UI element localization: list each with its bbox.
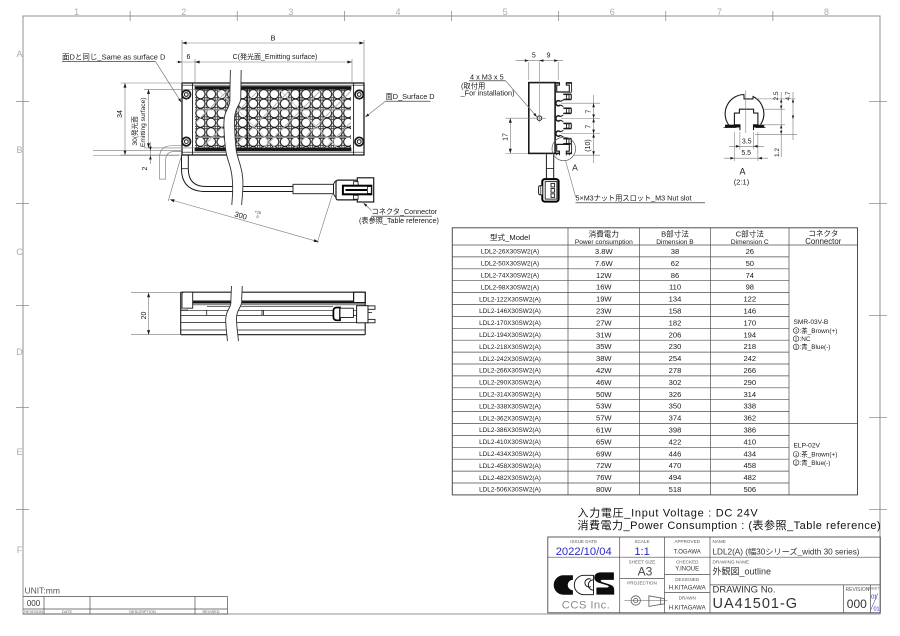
svg-text:DRAWING No.: DRAWING No. <box>713 585 776 596</box>
svg-text:230: 230 <box>669 342 682 351</box>
svg-text:H.KITAGAWA: H.KITAGAWA <box>669 606 706 612</box>
svg-text:65W: 65W <box>596 437 612 446</box>
svg-text:38: 38 <box>671 247 679 256</box>
svg-text:000: 000 <box>847 597 867 611</box>
svg-text:消費電力_Power Consumption : (表参照_: 消費電力_Power Consumption : (表参照_Table refe… <box>578 518 882 532</box>
svg-text:61W: 61W <box>596 425 612 434</box>
svg-text:Power consumption: Power consumption <box>575 239 633 246</box>
svg-text:C: C <box>16 247 23 257</box>
svg-text:80W: 80W <box>596 485 612 494</box>
svg-text:LDL2-242X30SW2(A): LDL2-242X30SW2(A) <box>479 356 541 363</box>
svg-text:218: 218 <box>743 342 756 351</box>
svg-text:T.OGAWA: T.OGAWA <box>674 550 701 556</box>
svg-text:B部寸法: B部寸法 <box>661 228 689 238</box>
svg-text:27W: 27W <box>596 318 612 327</box>
svg-text:SCALE: SCALE <box>634 539 649 544</box>
svg-text:57W: 57W <box>596 414 612 423</box>
svg-text::青_Blue(-): :青_Blue(-) <box>800 458 831 467</box>
svg-text:4 x M3 x 5: 4 x M3 x 5 <box>470 72 504 81</box>
svg-text:Emitting surface): Emitting surface) <box>140 98 147 147</box>
svg-text:コネクタ_Connector: コネクタ_Connector <box>372 207 438 216</box>
svg-text:98: 98 <box>746 283 754 292</box>
svg-text:DESIGNED: DESIGNED <box>675 577 700 582</box>
svg-text:C(発光面_Emitting surface): C(発光面_Emitting surface) <box>233 52 318 61</box>
svg-text:9: 9 <box>547 53 551 60</box>
svg-text:D: D <box>16 347 23 357</box>
svg-text:入力電圧_Input Voltage : DC 24V: 入力電圧_Input Voltage : DC 24V <box>578 507 759 520</box>
svg-text:266: 266 <box>743 366 756 375</box>
svg-text:38W: 38W <box>596 354 612 363</box>
svg-text:62: 62 <box>671 259 679 268</box>
svg-text:5×M3ナット用スロット_M3 Nut slot: 5×M3ナット用スロット_M3 Nut slot <box>576 194 692 203</box>
svg-text:(10): (10) <box>585 139 592 151</box>
svg-text:LDL2-74X30SW2(A): LDL2-74X30SW2(A) <box>481 272 539 279</box>
svg-text:110: 110 <box>669 283 681 292</box>
svg-text:ISSUE DATE: ISSUE DATE <box>570 539 597 544</box>
svg-text:482: 482 <box>743 473 756 482</box>
svg-text:1: 1 <box>74 7 79 17</box>
svg-text:B: B <box>270 34 275 43</box>
svg-text:ELP-02V: ELP-02V <box>794 442 821 449</box>
svg-text:242: 242 <box>743 354 756 363</box>
svg-text:LDL2-290X30SW2(A): LDL2-290X30SW2(A) <box>479 380 541 387</box>
svg-text:2: 2 <box>181 7 186 17</box>
svg-text:LDL2-362X30SW2(A): LDL2-362X30SW2(A) <box>479 415 541 422</box>
svg-text:410: 410 <box>743 437 756 446</box>
svg-text:Y.INOUE: Y.INOUE <box>675 567 699 573</box>
svg-text:LDL2-50X30SW2(A): LDL2-50X30SW2(A) <box>481 261 539 268</box>
svg-text:000: 000 <box>27 599 41 608</box>
svg-text:23W: 23W <box>596 306 612 315</box>
svg-text:42W: 42W <box>596 366 612 375</box>
svg-text:DRAWING NAME: DRAWING NAME <box>713 560 750 565</box>
svg-text:CHECKED: CHECKED <box>676 560 699 565</box>
svg-text:UNIT:mm: UNIT:mm <box>25 586 60 596</box>
svg-text:17: 17 <box>502 133 509 141</box>
svg-text:REVISION: REVISION <box>846 587 870 593</box>
svg-text:182: 182 <box>669 318 682 327</box>
svg-text:2: 2 <box>142 166 149 170</box>
svg-text:LDL2-458X30SW2(A): LDL2-458X30SW2(A) <box>479 463 541 470</box>
svg-text:E: E <box>16 447 22 457</box>
svg-text:434: 434 <box>743 449 756 458</box>
svg-text:122: 122 <box>743 295 756 304</box>
svg-text:494: 494 <box>669 473 682 482</box>
svg-text:LDL2-506X30SW2(A): LDL2-506X30SW2(A) <box>479 487 541 494</box>
svg-text:LDL2-386X30SW2(A): LDL2-386X30SW2(A) <box>479 427 541 434</box>
svg-text:7: 7 <box>586 109 593 113</box>
svg-text:CCS Inc.: CCS Inc. <box>562 600 610 612</box>
svg-text:LDL2-122X30SW2(A): LDL2-122X30SW2(A) <box>479 296 541 303</box>
svg-text:LDL2-194X30SW2(A): LDL2-194X30SW2(A) <box>479 332 541 339</box>
svg-text:446: 446 <box>669 449 682 458</box>
svg-text:LDL2-410X30SW2(A): LDL2-410X30SW2(A) <box>479 439 541 446</box>
svg-text:外観図_outline: 外観図_outline <box>713 566 772 577</box>
svg-text:30(発光面: 30(発光面 <box>130 116 139 146</box>
svg-text:H.KITAGAWA: H.KITAGAWA <box>669 586 706 592</box>
svg-text:3: 3 <box>288 7 293 17</box>
svg-text:(2:1): (2:1) <box>734 178 750 187</box>
svg-text:314: 314 <box>743 390 756 399</box>
svg-text:326: 326 <box>669 390 682 399</box>
svg-text:69W: 69W <box>596 449 612 458</box>
svg-text:2.5: 2.5 <box>773 91 780 100</box>
svg-text:PROJECTION: PROJECTION <box>627 581 657 586</box>
svg-text:16W: 16W <box>596 283 612 292</box>
svg-text:LDL2-98X30SW2(A): LDL2-98X30SW2(A) <box>481 284 539 291</box>
svg-text:UA41501-G: UA41501-G <box>713 596 799 612</box>
svg-text:3.8W: 3.8W <box>595 247 614 256</box>
svg-text:C部寸法: C部寸法 <box>736 228 765 238</box>
svg-text:338: 338 <box>743 402 756 411</box>
svg-text:302: 302 <box>669 378 682 387</box>
svg-text:NAME: NAME <box>713 539 726 544</box>
svg-text:7.6W: 7.6W <box>595 259 614 268</box>
svg-text:35W: 35W <box>596 342 612 351</box>
svg-text:278: 278 <box>669 366 682 375</box>
svg-text:Dimension B: Dimension B <box>656 239 694 246</box>
svg-text:12W: 12W <box>596 271 612 280</box>
svg-text:B: B <box>16 145 22 155</box>
svg-text:134: 134 <box>669 295 682 304</box>
svg-text:72W: 72W <box>596 461 612 470</box>
svg-text:7: 7 <box>717 7 722 17</box>
svg-text:(表参照_Table reference): (表参照_Table reference) <box>359 216 439 225</box>
svg-text:DESCRIPTION: DESCRIPTION <box>129 609 156 614</box>
svg-text:19W: 19W <box>596 295 612 304</box>
svg-text:Dimension C: Dimension C <box>731 239 769 246</box>
svg-text:20: 20 <box>141 312 148 320</box>
svg-text:LDL2-266X30SW2(A): LDL2-266X30SW2(A) <box>479 368 541 375</box>
svg-text:76W: 76W <box>596 473 612 482</box>
svg-text:F: F <box>17 545 23 555</box>
svg-text:53W: 53W <box>596 402 612 411</box>
svg-text:A3: A3 <box>638 564 653 578</box>
svg-text:6: 6 <box>610 7 615 17</box>
svg-text:74: 74 <box>746 271 754 280</box>
svg-text:506: 506 <box>743 485 756 494</box>
svg-text::青_Blue(-): :青_Blue(-) <box>800 342 831 351</box>
svg-text:458: 458 <box>743 461 756 470</box>
svg-text:LDL2-314X30SW2(A): LDL2-314X30SW2(A) <box>479 391 541 398</box>
svg-text:5.5: 5.5 <box>741 150 751 157</box>
svg-text:374: 374 <box>669 414 682 423</box>
svg-text:_For installation): _For installation) <box>460 89 515 98</box>
svg-text:REVISION: REVISION <box>24 609 43 614</box>
svg-text::NC: :NC <box>800 336 811 343</box>
svg-text:290: 290 <box>743 378 756 387</box>
svg-text:6: 6 <box>187 54 191 61</box>
svg-text:LDL2-482X30SW2(A): LDL2-482X30SW2(A) <box>479 475 541 482</box>
svg-text:170: 170 <box>743 318 756 327</box>
svg-text:518: 518 <box>669 485 682 494</box>
svg-text:5: 5 <box>503 7 508 17</box>
svg-text:50: 50 <box>746 259 754 268</box>
svg-text::茶_Brown(+): :茶_Brown(+) <box>800 326 838 335</box>
svg-text:1:1: 1:1 <box>634 546 650 558</box>
svg-text:01: 01 <box>873 607 879 613</box>
svg-text:158: 158 <box>669 306 682 315</box>
svg-text:398: 398 <box>669 425 682 434</box>
svg-text:LDL2-170X30SW2(A): LDL2-170X30SW2(A) <box>479 320 541 327</box>
svg-text:26: 26 <box>746 247 754 256</box>
svg-text:1.2: 1.2 <box>774 148 781 157</box>
svg-text:A: A <box>572 163 578 173</box>
svg-text:面Dと同じ_Same as surface D: 面Dと同じ_Same as surface D <box>62 53 166 62</box>
svg-text:LDL2-434X30SW2(A): LDL2-434X30SW2(A) <box>479 451 541 458</box>
svg-text:254: 254 <box>669 354 682 363</box>
svg-text:A: A <box>16 49 22 59</box>
svg-text:LDL2-338X30SW2(A): LDL2-338X30SW2(A) <box>479 403 541 410</box>
svg-text:4: 4 <box>395 7 400 17</box>
svg-text:4.7: 4.7 <box>785 91 792 100</box>
svg-text:350: 350 <box>669 402 682 411</box>
svg-text:2022/10/04: 2022/10/04 <box>556 546 612 558</box>
svg-text:194: 194 <box>743 330 756 339</box>
svg-text:DATE: DATE <box>62 609 72 614</box>
svg-text:LDL2-146X30SW2(A): LDL2-146X30SW2(A) <box>479 308 541 315</box>
svg-text:8: 8 <box>824 7 829 17</box>
svg-text:面D_Surface D: 面D_Surface D <box>386 92 435 101</box>
svg-text:362: 362 <box>743 414 756 423</box>
svg-text:LDL2-218X30SW2(A): LDL2-218X30SW2(A) <box>479 344 541 351</box>
svg-text:34: 34 <box>117 110 124 118</box>
svg-text:DRAWN: DRAWN <box>679 596 696 601</box>
svg-text:Connector: Connector <box>805 237 841 246</box>
svg-text:3.5: 3.5 <box>742 138 752 145</box>
svg-text:LDL2(A) (幅30シリーズ_width 30 ser: LDL2(A) (幅30シリーズ_width 30 series) <box>713 547 860 557</box>
svg-text::茶_Brown(+): :茶_Brown(+) <box>800 450 838 459</box>
svg-text:7: 7 <box>586 125 593 129</box>
svg-text:31W: 31W <box>596 330 612 339</box>
svg-text:A: A <box>739 167 745 177</box>
svg-text:消費電力: 消費電力 <box>589 228 619 238</box>
svg-text:206: 206 <box>669 330 682 339</box>
svg-text:SMR-03V-B: SMR-03V-B <box>794 319 829 326</box>
svg-text:146: 146 <box>743 306 756 315</box>
svg-text:型式_Model: 型式_Model <box>490 232 530 242</box>
svg-text:422: 422 <box>669 437 682 446</box>
svg-text:470: 470 <box>669 461 682 470</box>
svg-text:386: 386 <box>743 425 756 434</box>
svg-text:APPROVED: APPROVED <box>674 539 700 544</box>
svg-text:50W: 50W <box>596 390 612 399</box>
svg-text:REVISED: REVISED <box>202 609 219 614</box>
svg-text:SHEET: SHEET <box>868 587 881 591</box>
svg-text:46W: 46W <box>596 378 612 387</box>
svg-text:86: 86 <box>671 271 679 280</box>
svg-text:5: 5 <box>532 53 536 60</box>
svg-text:LDL2-26X30SW2(A): LDL2-26X30SW2(A) <box>481 249 539 256</box>
